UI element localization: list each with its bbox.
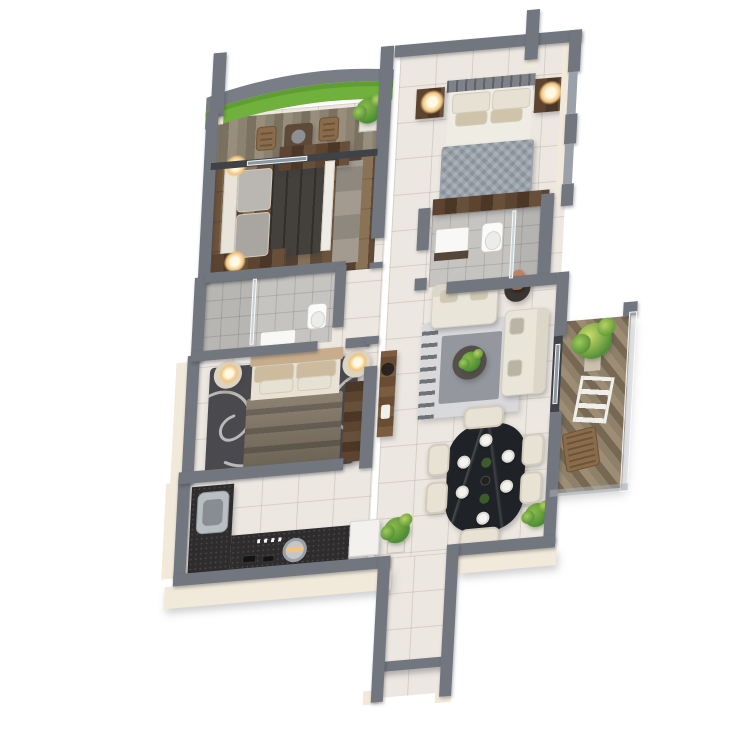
wall-master-right-2: [564, 113, 578, 144]
kitchen-appliance: [348, 519, 380, 558]
wall-bedroom1-right-pier: [369, 262, 382, 269]
hall-console-items: [381, 404, 391, 419]
bathroom2-toilet: [306, 302, 327, 330]
bedroom1-patch-rug: [332, 160, 363, 264]
sofa-pillow-top: [509, 317, 525, 335]
master-accent-pillow-left: [455, 110, 488, 127]
master-window-1: [567, 71, 578, 114]
floor-plan-canvas: [0, 0, 746, 746]
master-window-2: [563, 143, 574, 184]
wall-bedroom2-right-upper: [365, 336, 378, 345]
wall-master-right-3: [561, 183, 574, 206]
balcony-chair-right: [318, 116, 339, 142]
dining-chair-left-1: [427, 443, 451, 477]
dining-chair-head-top: [463, 404, 504, 429]
dining-chair-left-2: [425, 481, 449, 515]
kitchen-tray: [242, 554, 256, 563]
balcony-chair-left: [256, 126, 277, 152]
kitchen-sink-bowl: [202, 499, 223, 527]
bedroom1-pillow-top: [236, 168, 272, 213]
wall-ensuite-left-upper: [416, 208, 430, 251]
dining-chair-right-2: [519, 471, 543, 505]
dining-chair-right-1: [521, 433, 545, 467]
wall-stub-top-right: [524, 9, 540, 60]
master-toilet: [480, 221, 504, 253]
wall-master-right-1: [568, 29, 582, 72]
sofa-pillow-bottom: [507, 359, 523, 377]
wall-ensuite-left-lower: [414, 278, 427, 291]
bathroom2-shower-zone: [203, 279, 253, 353]
kitchen-tray: [262, 555, 274, 563]
apartment-plan: [0, 0, 746, 746]
bedroom1-dark-duvet: [268, 157, 325, 258]
master-accent-pillow-right: [490, 107, 523, 124]
